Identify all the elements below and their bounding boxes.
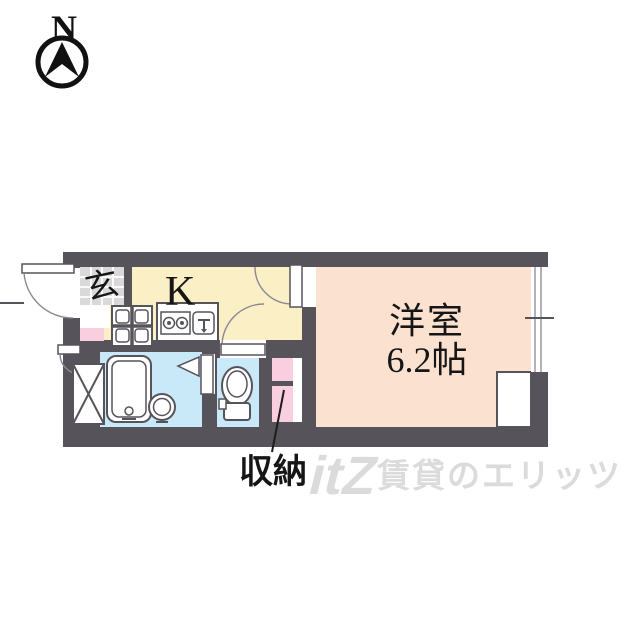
watermark-logo: itZ [303, 445, 384, 506]
storage-lower [272, 386, 293, 422]
kitchen-sink [193, 312, 214, 334]
storage-door-strip [293, 358, 302, 422]
front-door [0, 264, 80, 318]
entrance-divider-wall [124, 267, 132, 305]
storage-upper [272, 358, 293, 381]
pipe-shaft [73, 364, 104, 424]
floorplan-canvas: itZ 賃貸のエリッツ [0, 0, 640, 640]
closet-box [497, 372, 531, 427]
compass-north-icon: N [38, 8, 86, 86]
floor-plan-svg: itZ 賃貸のエリッツ [0, 0, 640, 640]
toilet [219, 367, 252, 420]
bathtub [107, 356, 151, 422]
western-room-label: 洋室 [389, 301, 465, 341]
washing-machine-pan [112, 306, 152, 346]
storage-label: 収納 [239, 453, 307, 491]
storage-area [272, 358, 302, 422]
western-room-size-label: 6.2帖 [386, 340, 467, 380]
entrance-step [80, 305, 110, 328]
gas-stove [161, 312, 190, 334]
entrance-utility-pink [80, 328, 104, 341]
watermark-brand: 賃貸のエリッツ [376, 457, 622, 494]
kitchen-label: K [165, 269, 195, 315]
watermark: itZ 賃貸のエリッツ [303, 445, 622, 506]
